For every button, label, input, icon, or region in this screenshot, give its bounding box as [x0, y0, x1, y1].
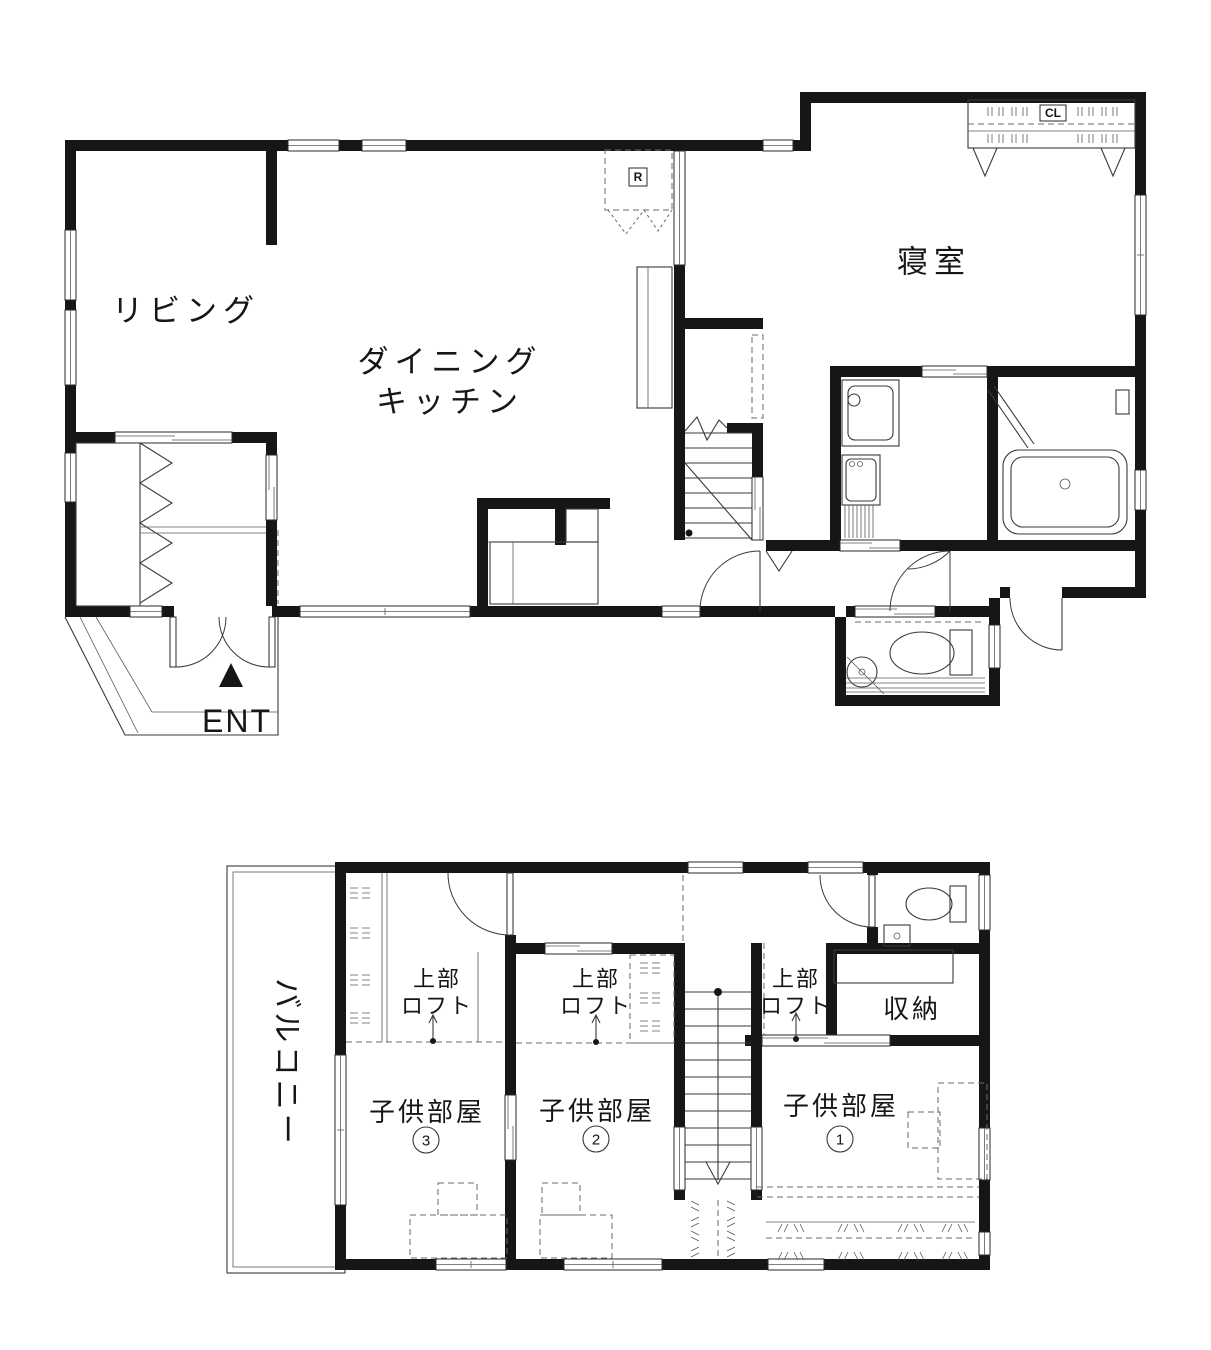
kids-room-3-label: 子供部屋 3 — [369, 1097, 485, 1153]
kids-room-2-loft: 上部 ロフト — [516, 955, 674, 1045]
closet-label: CL — [1045, 106, 1061, 120]
floorplan-canvas: R CL — [0, 0, 1211, 1350]
kids-room-1-number: 1 — [836, 1132, 844, 1149]
balcony-label: バルコニー — [270, 978, 303, 1147]
svg-text:子供部屋: 子供部屋 — [539, 1096, 655, 1126]
kitchen-counter-icon — [637, 267, 672, 408]
kids-room-3-loft: 上部 ロフト — [346, 873, 505, 1044]
loft-label-line1: 上部 — [572, 967, 620, 992]
bedroom-label: 寝室 — [897, 245, 971, 280]
stairs-upper-icon — [683, 875, 751, 1184]
loft-label-line1: 上部 — [772, 967, 820, 992]
svg-text:子供部屋: 子供部屋 — [783, 1091, 899, 1121]
kids-room-1-label: 子供部屋 1 — [783, 1091, 899, 1152]
dining-kitchen-label-line2: キッチン — [376, 385, 524, 420]
floor1-walls — [65, 92, 1146, 706]
sink-icon — [842, 380, 899, 505]
understairs-closet — [691, 1200, 735, 1258]
floor1-windows — [65, 140, 1146, 668]
loft-label-line1: 上部 — [413, 967, 461, 992]
living-room-label: リビング — [112, 294, 260, 329]
entry-closet-icon — [76, 443, 278, 606]
pantry-cabinet-icon — [488, 509, 598, 604]
washer-pan-icon — [845, 505, 873, 538]
ent-label: ENT — [202, 703, 272, 739]
balcony: バルコニー — [227, 866, 345, 1273]
toilet-upper-icon — [820, 875, 966, 946]
floor2-windows — [335, 862, 990, 1270]
refrigerator-icon: R — [605, 150, 672, 234]
second-floor-plan: バルコニー — [227, 862, 990, 1273]
stairs-icon — [685, 335, 763, 540]
kids-room-2-number: 2 — [592, 1132, 600, 1149]
svg-text:子供部屋: 子供部屋 — [369, 1097, 485, 1127]
desk-icons — [410, 1083, 987, 1258]
floor2-walls — [335, 862, 990, 1270]
first-floor-plan: R CL — [65, 92, 1146, 739]
dining-kitchen-label-line1: ダイニング — [358, 345, 543, 380]
entrance-arrow-icon — [219, 663, 243, 687]
closet-icon: CL — [968, 100, 1135, 176]
loft-label-line2: ロフト — [401, 994, 473, 1019]
toilet-icon — [846, 622, 985, 694]
fridge-label: R — [634, 170, 643, 184]
kids-room-2-label: 子供部屋 2 — [539, 1096, 655, 1152]
bathtub-icon — [988, 386, 1129, 534]
kids-room-3-door — [448, 873, 513, 935]
storage-label: 収納 — [883, 994, 941, 1024]
kids-room-3-number: 3 — [422, 1133, 430, 1150]
floorplan-svg: R CL — [0, 0, 1211, 1350]
